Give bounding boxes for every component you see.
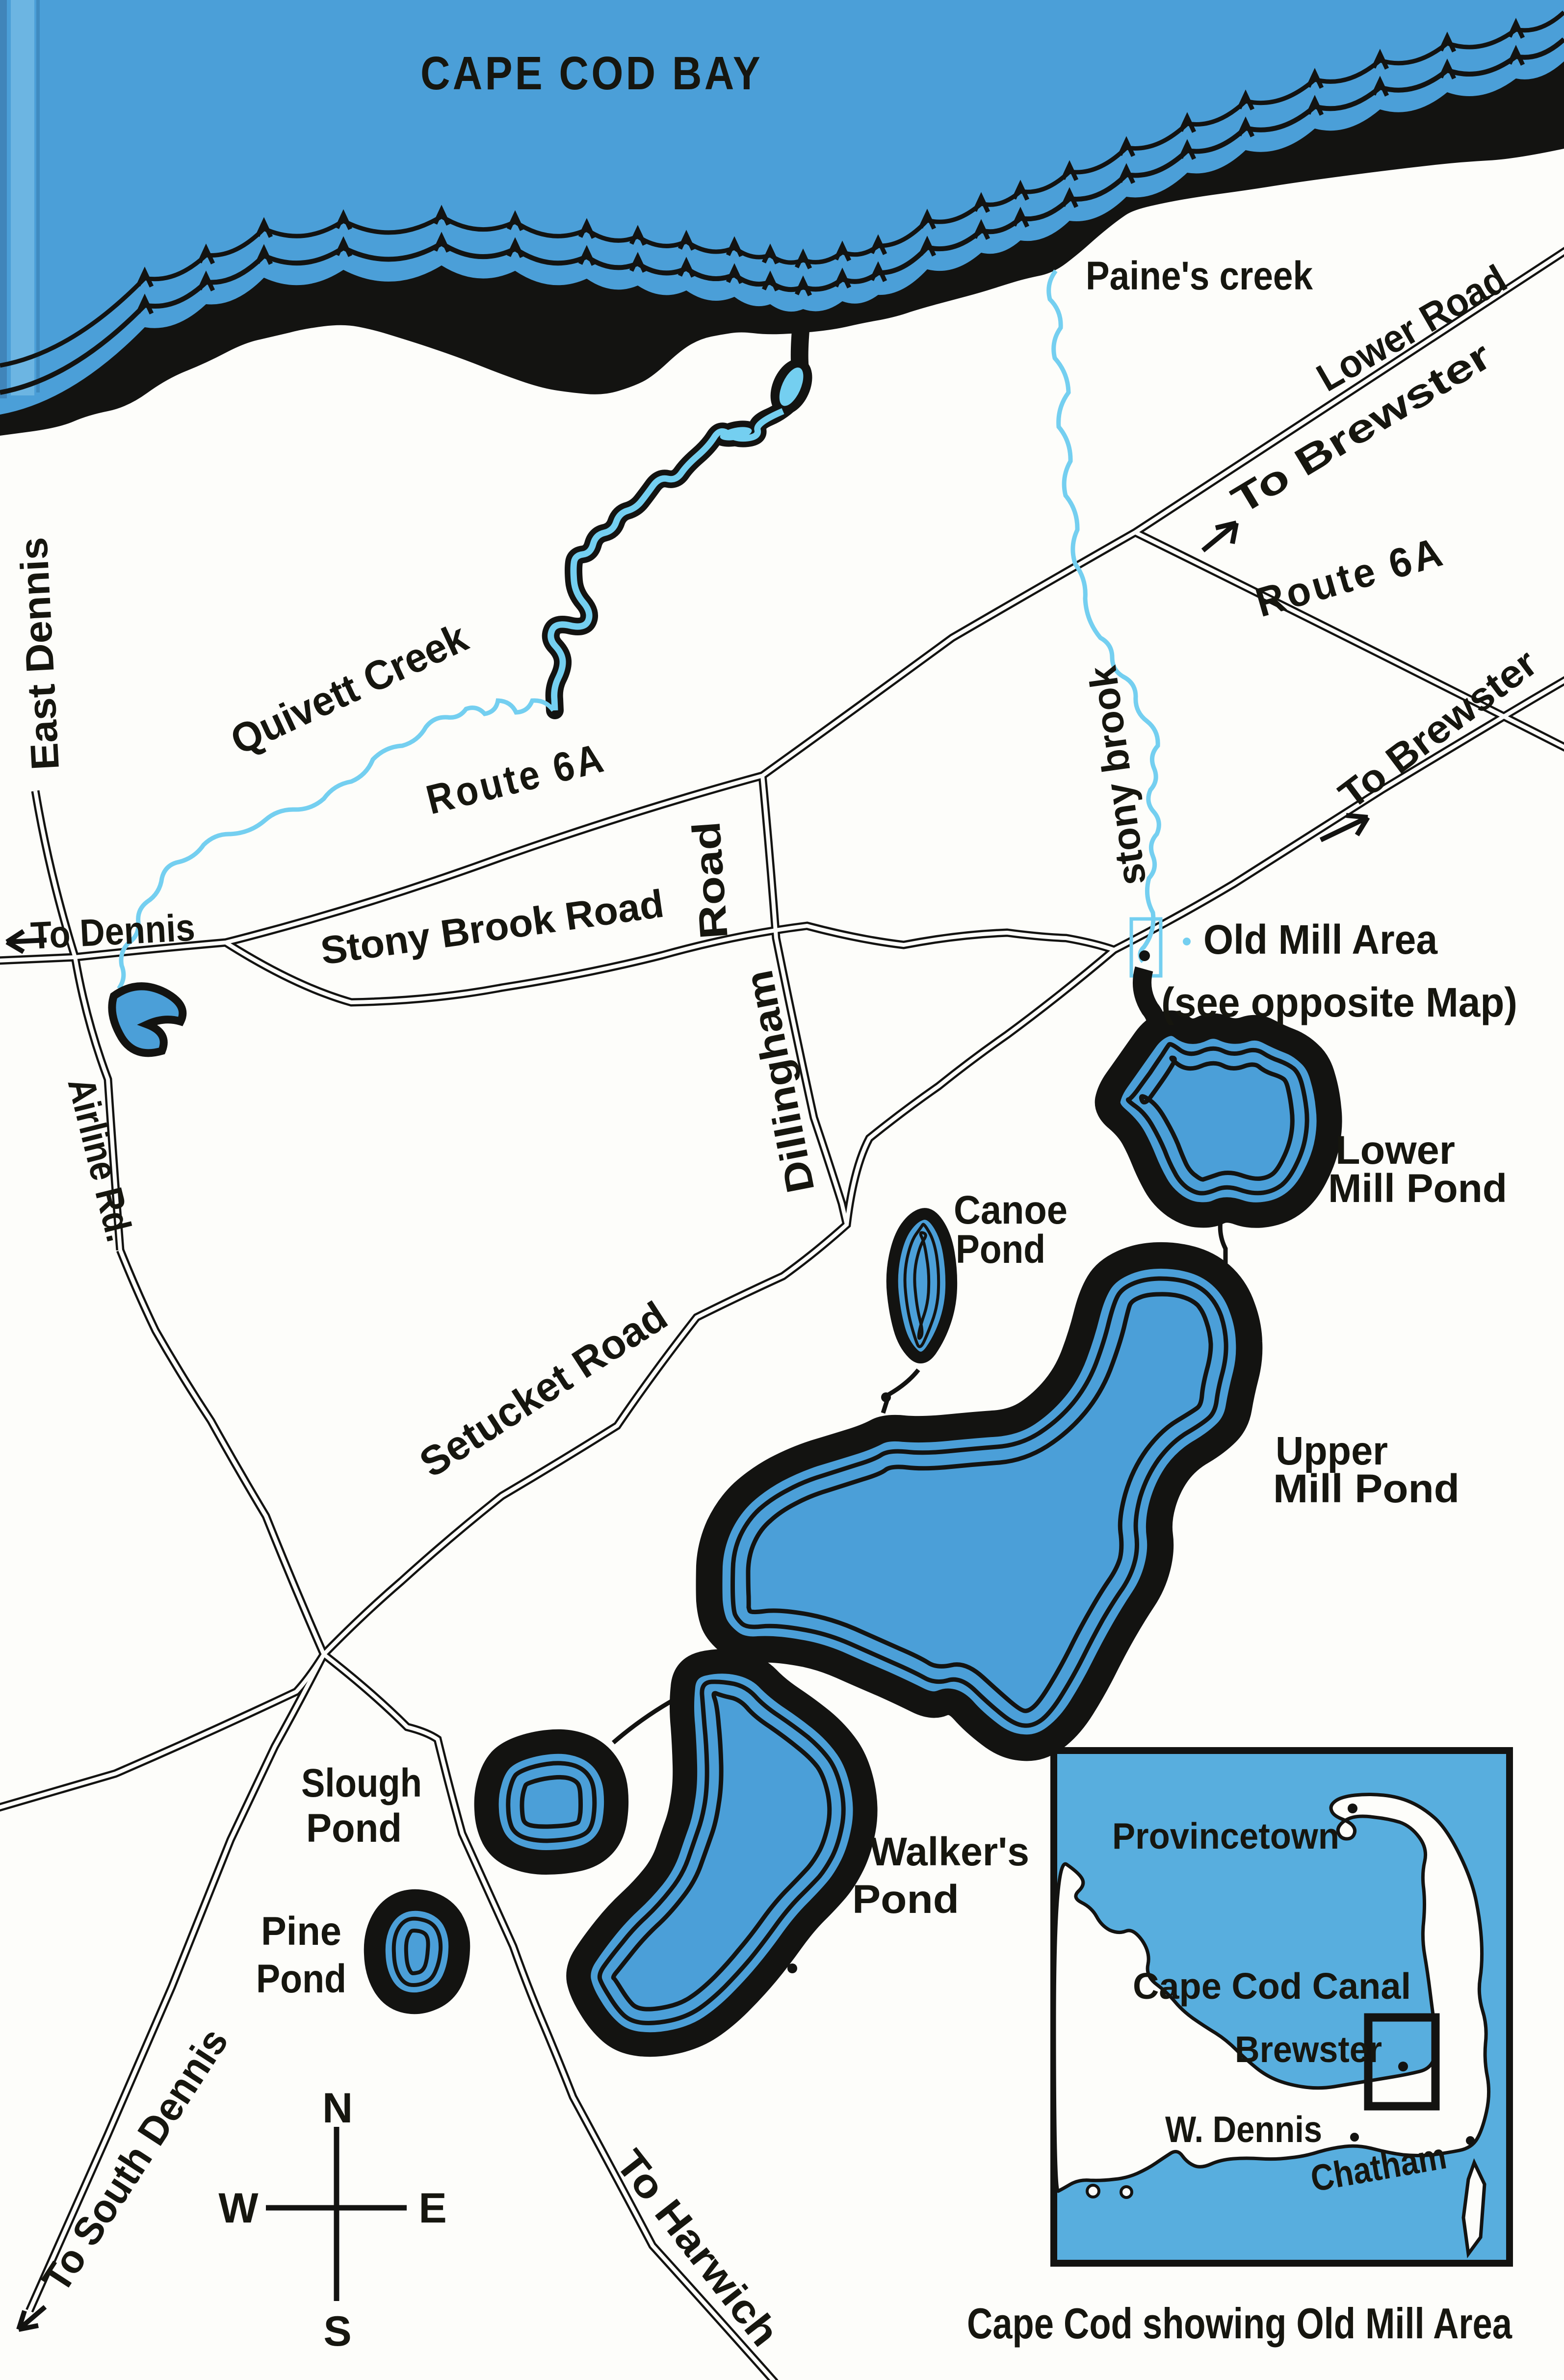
svg-text:(see opposite Map): (see opposite Map) (1161, 979, 1517, 1025)
svg-text:Road: Road (684, 820, 736, 941)
svg-text:Canoe: Canoe (954, 1188, 1068, 1232)
svg-text:Mill Pond: Mill Pond (1273, 1466, 1460, 1511)
svg-text:Mill Pond: Mill Pond (1328, 1166, 1507, 1211)
svg-text:S: S (323, 2308, 351, 2355)
svg-text:Route 6A: Route 6A (1251, 528, 1450, 626)
svg-text:Pond: Pond (306, 1806, 402, 1851)
svg-text:East Dennis: East Dennis (11, 536, 67, 771)
svg-text:Pond: Pond (852, 1877, 959, 1922)
svg-text:Old Mill Area: Old Mill Area (1203, 916, 1438, 963)
svg-text:To Brewster: To Brewster (1331, 641, 1545, 817)
svg-text:Provincetown: Provincetown (1112, 1815, 1339, 1857)
svg-text:To Harwich: To Harwich (607, 2142, 787, 2354)
svg-text:Brewster: Brewster (1235, 2029, 1382, 2070)
svg-text:E: E (418, 2185, 446, 2232)
svg-text:CAPE COD BAY: CAPE COD BAY (420, 47, 763, 100)
svg-text:Paine's creek: Paine's creek (1086, 254, 1313, 298)
svg-text:Stony Brook Road: Stony Brook Road (318, 882, 667, 973)
svg-text:Pond: Pond (256, 1957, 346, 2001)
svg-text:Pine: Pine (261, 1909, 341, 1954)
svg-text:Walker's: Walker's (870, 1830, 1029, 1874)
svg-text:N: N (322, 2085, 353, 2132)
svg-text:Pond: Pond (956, 1227, 1045, 1272)
svg-text:Slough: Slough (301, 1761, 422, 1805)
svg-text:Setucket Road: Setucket Road (412, 1292, 676, 1486)
svg-text:Cape Cod Canal: Cape Cod Canal (1133, 1965, 1411, 2007)
svg-text:W. Dennis: W. Dennis (1165, 2109, 1322, 2150)
svg-text:Quivett Creek: Quivett Creek (224, 614, 474, 763)
svg-text:To Dennis: To Dennis (29, 906, 196, 957)
svg-text:Airline Rd.: Airline Rd. (60, 1073, 142, 1246)
svg-text:W: W (218, 2185, 259, 2232)
svg-text:Route 6A: Route 6A (422, 734, 610, 823)
svg-text:stony brook: stony brook (1080, 663, 1154, 889)
svg-text:Cape Cod showing Old Mill Area: Cape Cod showing Old Mill Area (967, 2299, 1512, 2348)
